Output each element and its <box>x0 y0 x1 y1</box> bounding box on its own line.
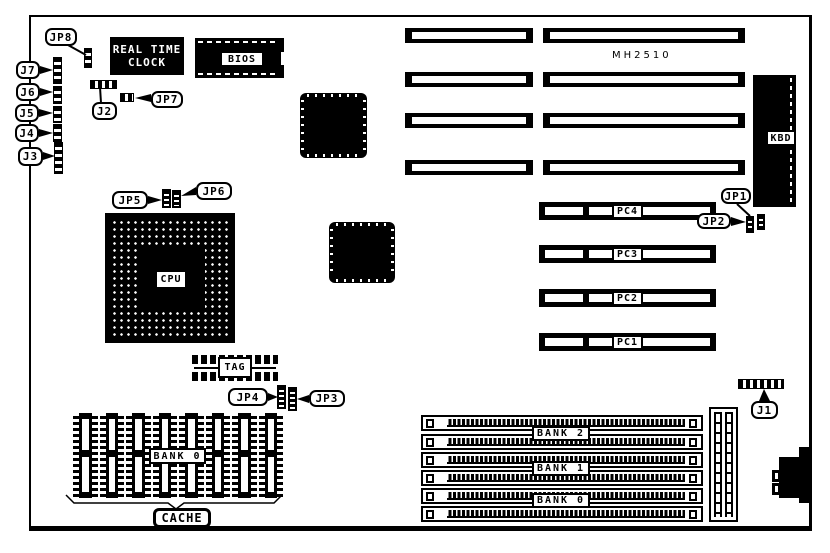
jp4-jp3-jumper-block <box>288 387 297 411</box>
motherboard-diagram: MH2510 REAL TIME CLOCK BIOS KBD PC4 PC3 … <box>0 0 830 553</box>
chip-pins <box>301 100 304 151</box>
cache-chip-column <box>73 413 98 498</box>
pci-slot-key <box>583 250 589 258</box>
jp5-jp6-jumper-block <box>162 189 171 208</box>
cache-label: CACHE <box>153 508 211 528</box>
chip-pins <box>307 94 360 97</box>
pci-slot-key <box>583 207 589 215</box>
callout-jp8: JP8 <box>45 28 77 46</box>
callout-jp4: JP4 <box>228 388 268 406</box>
callout-jp2: JP2 <box>697 213 731 229</box>
callout-jp1: JP1 <box>721 188 751 204</box>
bios-chip-notch <box>281 52 285 65</box>
edge-connector-pins <box>725 412 733 517</box>
qfp-chip <box>329 222 395 283</box>
callout-j2: J2 <box>92 102 117 120</box>
edge-connector-pins <box>714 412 722 517</box>
chip-pins <box>363 100 366 151</box>
callout-j4: J4 <box>15 124 39 142</box>
simm-bank-label: BANK 2 <box>532 426 590 441</box>
jp7-pin-header <box>120 93 134 102</box>
j3-pin-header <box>54 142 63 174</box>
isa-slot <box>543 160 745 175</box>
cache-chip-column <box>100 413 125 498</box>
chip-pins <box>336 279 388 282</box>
power-connector-pin <box>772 470 781 482</box>
callout-jp6: JP6 <box>196 182 232 200</box>
j7-pin-header <box>53 57 62 84</box>
chip-pins <box>391 229 394 276</box>
callout-jp7: JP7 <box>151 91 183 108</box>
board-model-text: MH2510 <box>612 50 672 61</box>
simm-bank-label: BANK 1 <box>532 461 590 476</box>
isa-slot <box>543 72 745 87</box>
jp5-jp6-jumper-block <box>172 190 181 208</box>
tag-label: TAG <box>218 357 252 378</box>
power-connector-pin <box>772 483 781 495</box>
isa-slot <box>405 72 533 87</box>
isa-slot <box>543 28 745 43</box>
jp1-jp2-jumper-block <box>746 216 754 233</box>
rtc-chip: REAL TIME CLOCK <box>110 37 184 75</box>
cache-chip-column <box>206 413 231 498</box>
isa-slot <box>405 160 533 175</box>
power-connector <box>779 457 801 498</box>
cache-chip-column <box>259 413 284 498</box>
cache-chip-column <box>232 413 257 498</box>
callout-j1: J1 <box>751 401 778 419</box>
j2-pin-header <box>90 80 117 89</box>
chip-pins <box>336 223 388 226</box>
cache-bank-label: BANK 0 <box>149 448 206 464</box>
cache-chip-column <box>126 413 151 498</box>
isa-slot <box>405 28 533 43</box>
callout-j3: J3 <box>18 147 43 166</box>
j6-pin-header <box>53 86 62 104</box>
callout-j5: J5 <box>15 104 39 122</box>
chip-pins <box>307 154 360 157</box>
qfp-chip <box>300 93 367 158</box>
kbd-label: KBD <box>766 130 796 146</box>
pci-slot-label: PC3 <box>612 247 643 262</box>
simm-bank-label: BANK 0 <box>532 493 590 508</box>
jp1-jp2-jumper-block <box>757 214 765 230</box>
j1-pin-header <box>738 379 784 389</box>
pci-slot-label: PC1 <box>612 335 643 350</box>
callout-j7: J7 <box>16 61 40 79</box>
simm-slot <box>421 506 703 522</box>
chip-pins <box>330 229 333 276</box>
j4-pin-header <box>53 124 62 142</box>
j5-pin-header <box>53 106 62 123</box>
callout-jp3: JP3 <box>309 390 345 407</box>
pci-slot-label: PC2 <box>612 291 643 306</box>
callout-jp5: JP5 <box>112 191 148 209</box>
jp8-pin-header <box>84 48 92 68</box>
edge-connector <box>709 407 738 522</box>
pci-slot-label: PC4 <box>612 204 643 219</box>
jp4-jp3-jumper-block <box>277 385 286 409</box>
pci-slot-key <box>583 338 589 346</box>
rtc-label-line1: REAL TIME <box>113 43 182 56</box>
isa-slot <box>543 113 745 128</box>
bios-label: BIOS <box>220 51 264 67</box>
cpu-label: CPU <box>156 271 186 288</box>
rtc-label-line2: CLOCK <box>128 56 166 69</box>
isa-slot <box>405 113 533 128</box>
pci-slot-key <box>583 294 589 302</box>
callout-j6: J6 <box>16 83 40 101</box>
